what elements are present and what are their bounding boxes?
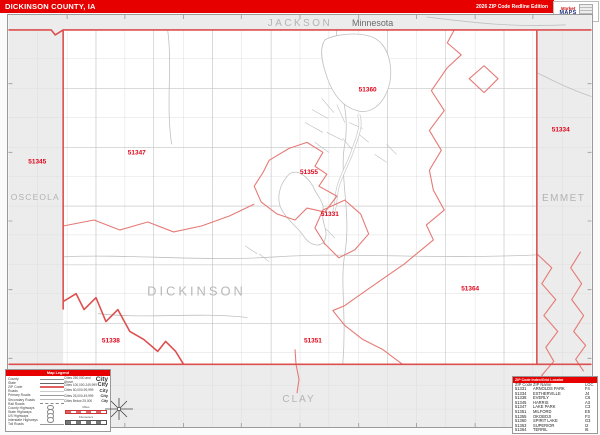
road-line-sample: [40, 391, 64, 392]
map-frame: JACKSON Minnesota OSCEOLA EMMET CLAY DIC…: [7, 14, 593, 428]
zip-label-51345: 51345: [28, 158, 46, 165]
railroad-sample: [40, 403, 64, 404]
label-clay-county: CLAY: [282, 394, 315, 405]
compass-rose-icon: [104, 394, 134, 424]
zip-label-51338: 51338: [102, 337, 120, 344]
zip-label-51334: 51334: [552, 126, 570, 133]
zip-line-sample: [40, 386, 64, 388]
scale-label: Kilometers: [64, 416, 108, 419]
city-size-label: Cities Below 25,000: [64, 399, 92, 403]
city-size-label: Cities 25,000-49,999: [64, 394, 93, 398]
map-legend: Map Legend County State ZIP Code Roads P…: [5, 369, 111, 432]
miles-bar: [65, 410, 107, 415]
edition-label: 2026 ZIP Code Redline Edition: [476, 4, 554, 10]
legend-city-items: Cities 250,000 and AboveCity Cities 100,…: [64, 377, 108, 426]
secondary-road-sample: [40, 399, 64, 400]
zip-code-map-page: { "title_bar": { "title": "DICKINSON COU…: [0, 0, 600, 435]
zip-index-table: ZIP Code Index/Grid Locator ZIP Code ZIP…: [512, 376, 598, 434]
label-emmet-county: EMMET: [542, 193, 585, 204]
interstate-badge: [47, 417, 54, 423]
toll-road-sample: [40, 424, 64, 425]
label-jackson-county: JACKSON: [268, 18, 332, 29]
city-size-label: Cities 100,000-249,999: [64, 383, 97, 387]
city-size-label: Cities 50,000-99,999: [64, 388, 93, 392]
zip-label-51351: 51351: [304, 337, 322, 344]
spirit-lake: [322, 34, 391, 112]
primary-road-sample: [40, 395, 64, 396]
kilometers-bar: [65, 420, 107, 425]
scale-bar-km: Kilometers: [64, 416, 108, 425]
city-glyph: City: [99, 388, 108, 393]
zip-label-51331: 51331: [321, 211, 339, 218]
scale-bar-miles: Miles: [64, 406, 108, 415]
county-map-canvas: JACKSON Minnesota OSCEOLA EMMET CLAY DIC…: [8, 15, 592, 427]
scale-label: Miles: [64, 406, 108, 409]
zip-label-51364: 51364: [461, 286, 479, 293]
state-line-sample: [40, 383, 64, 384]
label-osceola-county: OSCEOLA: [11, 192, 60, 202]
label-minnesota: Minnesota: [352, 18, 393, 28]
label-dickinson-county: DICKINSON: [147, 284, 246, 299]
zip-label-51347: 51347: [128, 149, 146, 156]
county-line-sample: [40, 379, 64, 380]
title-bar: DICKINSON COUNTY, IA 2026 ZIP Code Redli…: [0, 0, 554, 13]
zip-label-51355: 51355: [300, 169, 318, 176]
legend-item: Toll Roads: [8, 422, 24, 426]
map-title: DICKINSON COUNTY, IA: [0, 2, 96, 11]
table-row: 51364TERRILI6: [513, 428, 597, 433]
zip-label-51360: 51360: [359, 87, 377, 94]
legend-line-items: County State ZIP Code Roads Primary Road…: [8, 377, 64, 426]
